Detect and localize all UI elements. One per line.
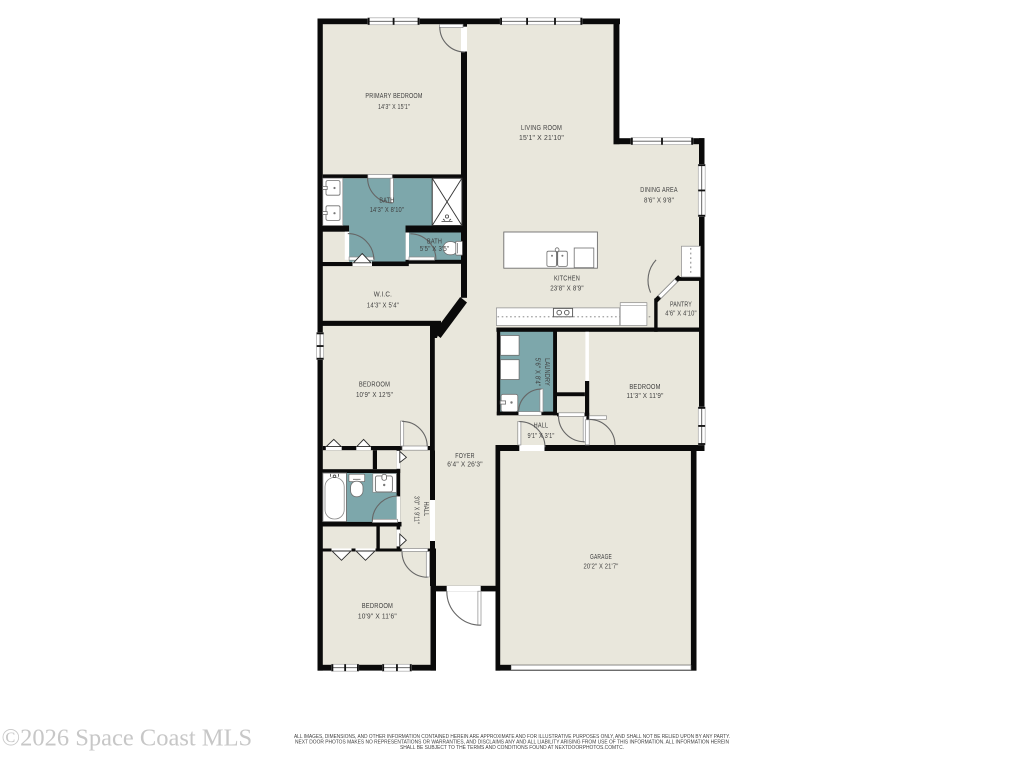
svg-text:LIVING ROOM: LIVING ROOM — [521, 123, 562, 132]
svg-text:15'1" X 21'10": 15'1" X 21'10" — [519, 133, 564, 142]
svg-text:6'4" X 26'3": 6'4" X 26'3" — [447, 459, 483, 468]
svg-text:20'2" X 21'7": 20'2" X 21'7" — [584, 561, 619, 570]
svg-text:3'0" X 9'11": 3'0" X 9'11" — [412, 496, 421, 524]
svg-text:8'6" X 9'8": 8'6" X 9'8" — [644, 196, 674, 205]
svg-text:11'3" X 11'9": 11'3" X 11'9" — [627, 391, 664, 400]
svg-text:©2026 Space Coast MLS: ©2026 Space Coast MLS — [2, 725, 253, 752]
svg-text:BEDROOM: BEDROOM — [362, 601, 393, 610]
svg-text:BEDROOM: BEDROOM — [359, 380, 390, 389]
svg-text:BATH: BATH — [379, 196, 394, 205]
svg-text:PRIMARY BEDROOM: PRIMARY BEDROOM — [365, 91, 422, 100]
svg-text:5'6" X 8'4": 5'6" X 8'4" — [534, 358, 543, 387]
svg-text:DINING AREA: DINING AREA — [640, 185, 678, 194]
svg-text:4'6" X 4'10": 4'6" X 4'10" — [665, 308, 697, 317]
svg-text:14'3" X 5'4": 14'3" X 5'4" — [367, 300, 399, 309]
svg-text:HALL: HALL — [422, 502, 431, 517]
svg-text:PANTRY: PANTRY — [670, 300, 692, 309]
svg-text:9'1" X 3'1": 9'1" X 3'1" — [527, 431, 554, 440]
svg-text:10'9" X 12'5": 10'9" X 12'5" — [356, 390, 393, 399]
svg-text:BEDROOM: BEDROOM — [629, 382, 660, 391]
svg-text:23'8" X 8'9": 23'8" X 8'9" — [550, 284, 584, 293]
svg-text:W.I.C.: W.I.C. — [374, 290, 392, 299]
svg-text:LAUNDRY: LAUNDRY — [543, 358, 552, 386]
svg-text:14'3" X 15'1": 14'3" X 15'1" — [378, 102, 410, 111]
svg-text:KITCHEN: KITCHEN — [554, 274, 580, 283]
svg-text:5'5" X 3'5": 5'5" X 3'5" — [420, 244, 450, 253]
svg-text:10'9" X 11'6": 10'9" X 11'6" — [358, 611, 397, 620]
svg-text:SHALL BE SUBJECT TO THE TERMS: SHALL BE SUBJECT TO THE TERMS AND CONDIT… — [400, 745, 624, 751]
svg-text:HALL: HALL — [534, 421, 549, 430]
svg-text:GARAGE: GARAGE — [590, 552, 612, 561]
svg-text:14'3" X 8'10": 14'3" X 8'10" — [370, 205, 405, 214]
